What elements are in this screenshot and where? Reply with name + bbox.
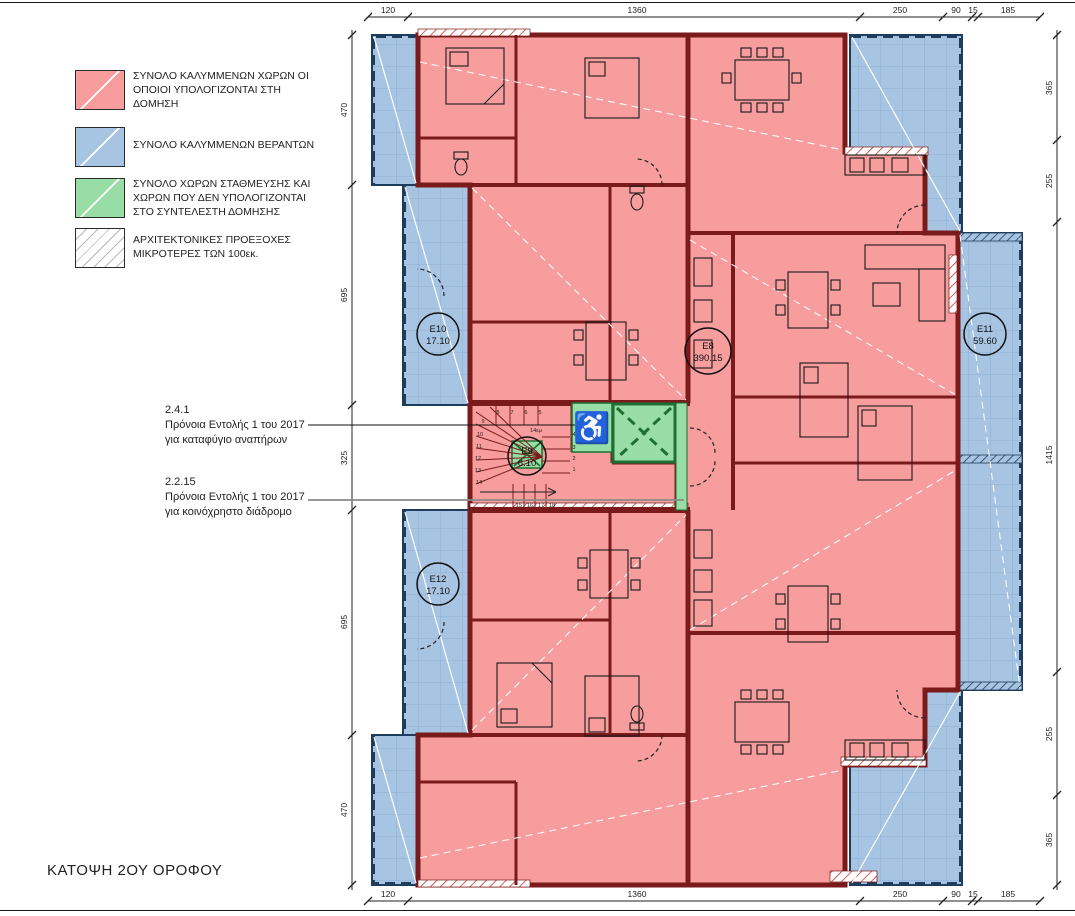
dim-label: 90 (951, 5, 961, 15)
stair-tread-number: 9 (481, 419, 484, 425)
dim-label: 365 (1044, 81, 1054, 95)
dim-label: 15 (968, 889, 978, 899)
annotation-refuge: 2.4.1 Πρόνοια Εντολής 1 του 2017 για κατ… (165, 403, 355, 448)
dim-label: 185 (1001, 889, 1015, 899)
stair-tread-number: 3 (572, 445, 575, 451)
dim-label: 120 (381, 889, 395, 899)
stair-tread-number: 2 (572, 456, 575, 462)
stair-tread-number: 15 (516, 503, 522, 509)
legend-item-projections: ΑΡΧΙΤΕΚΤΟΝΙΚΕΣ ΠΡΟΕΞΟΧΕΣ ΜΙΚΡΟΤΕΡΕΣ ΤΩΝ … (75, 228, 318, 268)
annotation-corridor: 2.2.15 Πρόνοια Εντολής 1 του 2017 για κο… (165, 475, 355, 520)
stair-tread-number: 11 (476, 444, 482, 450)
area-value: 59.60 (973, 336, 997, 347)
area-id: E8 (702, 341, 714, 352)
annotation-code: 2.2.15 (165, 475, 355, 490)
dim-label: 250 (893, 889, 907, 899)
area-id: E9 (521, 446, 533, 457)
legend-swatch-pink (75, 70, 125, 110)
dim-label: 120 (381, 5, 395, 15)
area-value: 17.10 (426, 586, 450, 597)
area-id: E10 (430, 324, 447, 335)
legend-item-non-countable: ΣΥΝΟΛΟ ΧΩΡΩΝ ΣΤΑΘΜΕΥΣΗΣ ΚΑΙ ΧΩΡΩΝ ΠΟΥ ΔΕ… (75, 178, 318, 220)
dim-label: 255 (1044, 174, 1054, 188)
area-value: 390.15 (693, 353, 722, 364)
dim-label: 470 (339, 803, 349, 817)
stair-tread-number: 1 (572, 467, 575, 473)
stair-tread-number: 8 (496, 410, 499, 416)
annotation-line: για κοινόχρηστο διάδρομο (165, 505, 355, 520)
stair-tread-number: 16 (527, 503, 533, 509)
stair-tread-number: 6 (524, 410, 527, 416)
annotation-line: για καταφύγιο αναπήρων (165, 433, 355, 448)
dim-label: 1360 (628, 5, 647, 15)
annotation-line: Πρόνοια Εντολής 1 του 2017 (165, 490, 355, 505)
area-value: 17.10 (426, 336, 450, 347)
drawing-sheet: ♿ 1 2 3 4 5 6 7 8 9 10 11 12 13 14 15 (0, 0, 1075, 916)
legend-swatch-hatched (75, 228, 125, 268)
dim-label: 90 (951, 889, 961, 899)
legend-label: ΣΥΝΟΛΟ ΧΩΡΩΝ ΣΤΑΘΜΕΥΣΗΣ ΚΑΙ ΧΩΡΩΝ ΠΟΥ ΔΕ… (133, 178, 318, 220)
wheelchair-icon: ♿ (573, 410, 610, 445)
stair-tread-number: 13 (475, 468, 481, 474)
area-id: E11 (977, 324, 993, 335)
common-corridor-strip (676, 403, 687, 510)
stair-tread-number: 7 (510, 410, 513, 416)
legend-swatch-green (75, 178, 125, 218)
dim-label: 470 (339, 103, 349, 117)
area-id: E12 (430, 574, 447, 585)
dim-label: 1360 (628, 889, 647, 899)
stair-note: 14εμ (530, 428, 542, 434)
dim-label: 695 (339, 615, 349, 629)
dim-label: 1415 (1044, 445, 1054, 464)
annotation-line: Πρόνοια Εντολής 1 του 2017 (165, 418, 355, 433)
legend-swatch-blue (75, 127, 125, 167)
legend-label: ΣΥΝΟΛΟ ΚΑΛΥΜΜΕΝΩΝ ΧΩΡΩΝ ΟΙ ΟΠΟΙΟΙ ΥΠΟΛΟΓ… (133, 70, 318, 112)
stair-tread-number: 5 (538, 410, 541, 416)
dim-label: 255 (1044, 727, 1054, 741)
stair-tread-number: 12 (475, 456, 481, 462)
area-value: 6.10 (518, 458, 537, 469)
dim-label: 365 (1044, 833, 1054, 847)
page-title: ΚΑΤΟΨΗ 2ΟΥ ΟΡΟΦΟΥ (47, 862, 222, 879)
stair-tread-number: 18 (549, 503, 555, 509)
legend-label: ΣΥΝΟΛΟ ΚΑΛΥΜΜΕΝΩΝ ΒΕΡΑΝΤΩΝ (133, 139, 318, 153)
dim-label: 15 (968, 5, 978, 15)
stair-tread-number: 4 (572, 432, 575, 438)
stair-tread-number: 10 (477, 432, 483, 438)
dim-label: 250 (893, 5, 907, 15)
legend-item-built-area: ΣΥΝΟΛΟ ΚΑΛΥΜΜΕΝΩΝ ΧΩΡΩΝ ΟΙ ΟΠΟΙΟΙ ΥΠΟΛΟΓ… (75, 70, 318, 112)
legend-item-verandas: ΣΥΝΟΛΟ ΚΑΛΥΜΜΕΝΩΝ ΒΕΡΑΝΤΩΝ (75, 127, 318, 167)
dim-label: 325 (339, 451, 349, 465)
dim-label: 695 (339, 288, 349, 302)
annotation-code: 2.4.1 (165, 403, 355, 418)
legend-label: ΑΡΧΙΤΕΚΤΟΝΙΚΕΣ ΠΡΟΕΞΟΧΕΣ ΜΙΚΡΟΤΕΡΕΣ ΤΩΝ … (133, 234, 318, 262)
stair-tread-number: 17 (538, 503, 544, 509)
dim-label: 185 (1001, 5, 1015, 15)
stair-tread-number: 14 (476, 480, 482, 486)
